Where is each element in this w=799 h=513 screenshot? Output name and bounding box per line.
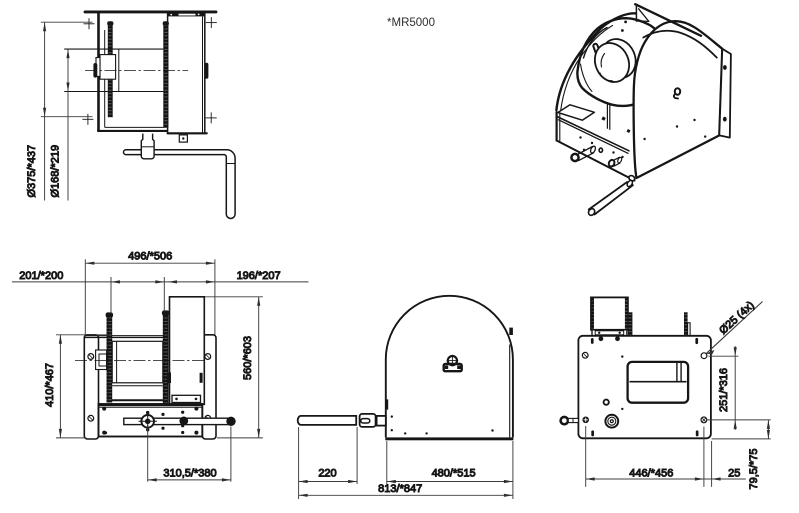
svg-text:496/*506: 496/*506 [128, 251, 172, 263]
svg-text:446/*456: 446/*456 [629, 467, 673, 479]
svg-text:251/*316: 251/*316 [718, 368, 730, 412]
svg-text:220: 220 [318, 467, 336, 479]
svg-text:*MR5000: *MR5000 [387, 17, 435, 29]
svg-text:310,5/*380: 310,5/*380 [163, 467, 216, 479]
svg-text:79,5/*75: 79,5/*75 [748, 449, 760, 490]
svg-text:480/*515: 480/*515 [432, 467, 476, 479]
svg-text:201/*200: 201/*200 [19, 270, 63, 282]
svg-text:Ø375/*437: Ø375/*437 [26, 145, 38, 198]
svg-text:25: 25 [728, 467, 740, 479]
svg-text:813/*847: 813/*847 [378, 483, 422, 495]
svg-text:196/*207: 196/*207 [237, 270, 281, 282]
svg-text:Ø168/*219: Ø168/*219 [49, 145, 61, 198]
svg-text:560/*603: 560/*603 [242, 336, 254, 380]
svg-text:410/*467: 410/*467 [44, 363, 56, 407]
